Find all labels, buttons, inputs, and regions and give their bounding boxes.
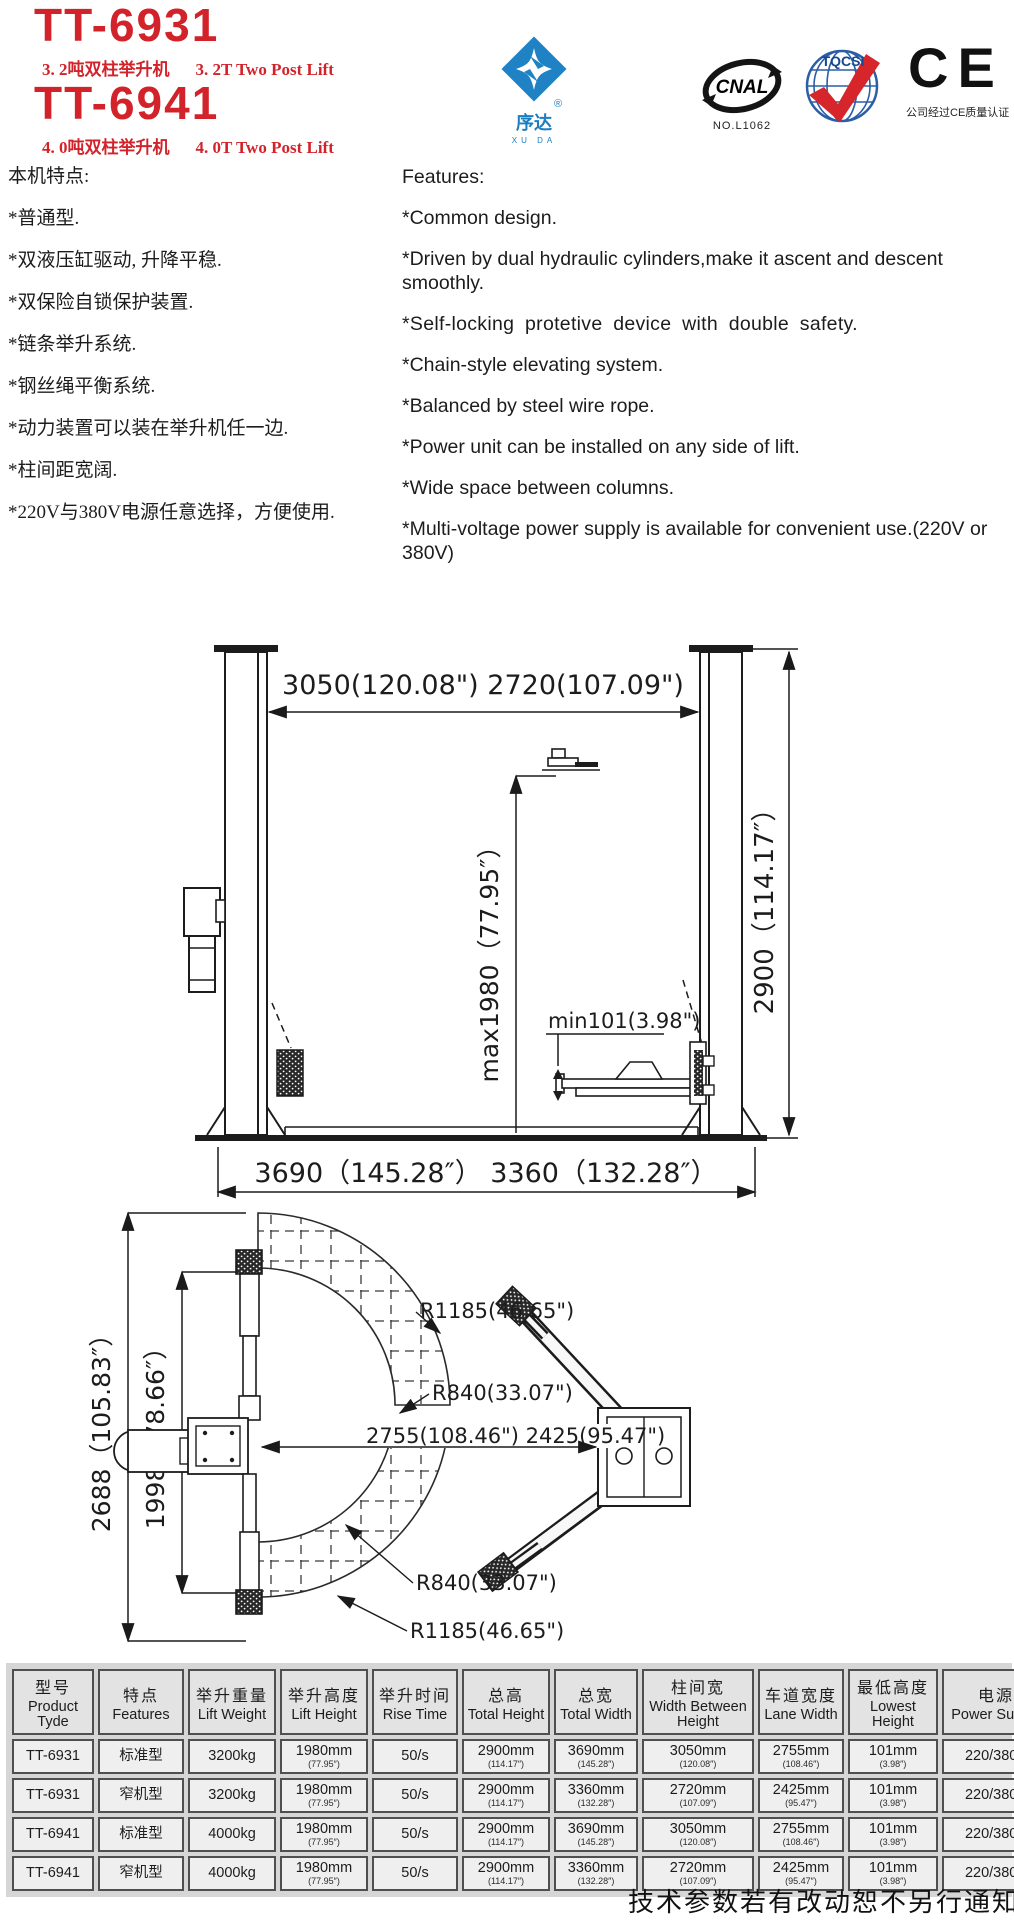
feature-en-item: *Chain-style elevating system. <box>402 353 1014 377</box>
label-r1185-upper: R1185(46.65") <box>420 1299 574 1323</box>
left-column <box>225 652 267 1135</box>
feature-en-item: *Driven by dual hydraulic cylinders,make… <box>402 247 1014 295</box>
col-width-between: 柱间宽Width Between Height <box>642 1669 754 1735</box>
feature-en-item: *Wide space between columns. <box>402 476 1014 500</box>
label-r840-upper: R840(33.07") <box>432 1381 573 1405</box>
left-column-cap <box>214 645 278 652</box>
tqcsi-globe-icon: TQCSI <box>798 44 888 128</box>
feature-en-item: *Self-locking protetive device with doub… <box>402 312 1014 336</box>
col-rise-time: 举升时间Rise Time <box>372 1669 458 1735</box>
feature-cn-item: *220V与380V电源任意选择，方便使用. <box>8 501 348 525</box>
power-unit <box>184 888 225 992</box>
cnal-number: NO.L1062 <box>698 120 786 132</box>
dim-max-lift-height: max1980（77.95″） <box>475 834 504 1083</box>
left-cable-dashed <box>272 1003 291 1048</box>
xuda-logo-subtext: XU DA <box>492 136 576 145</box>
col-features: 特点Features <box>98 1669 184 1735</box>
label-r840-lower: R840(33.07") <box>416 1571 557 1595</box>
table-row: TT-6931 窄机型 3200kg 1980mm(77.95″) 50/s 2… <box>12 1778 1014 1813</box>
datasheet-page: TT-6931 3. 2吨双柱举升机3. 2T Two Post Lift TT… <box>0 0 1014 1920</box>
feature-cn-item: *双保险自锁保护装置. <box>8 291 348 315</box>
col-lift-weight: 举升重量Lift Weight <box>188 1669 276 1735</box>
ce-caption: 公司经过CE质量认证 <box>906 104 1009 120</box>
model-subtitle-tt6941: 4. 0吨双柱举升机4. 0T Two Post Lift <box>42 133 334 158</box>
col-power-supply: 电源Power Supply <box>942 1669 1014 1735</box>
dim-length-outer: 2688（105.83″） <box>87 1322 116 1532</box>
cnal-certification-logo: CNAL NO.L1062 <box>698 58 786 132</box>
dim-width-between-columns: 3050(120.08") 2720(107.09") <box>282 670 684 701</box>
col-lowest-height: 最低高度Lowest Height <box>848 1669 938 1735</box>
feature-en-item: *Balanced by steel wire rope. <box>402 394 1014 418</box>
model-title-tt6931: TT-6931 <box>34 2 219 48</box>
technical-drawings: 3050(120.08") 2720(107.09") max1980（77.9… <box>0 630 1014 1660</box>
xuda-logo-text: 序达 <box>492 109 576 135</box>
feature-en-item: *Power unit can be installed on any side… <box>402 435 1014 459</box>
spec-header-row: 型号Product Tyde 特点Features 举升重量Lift Weigh… <box>12 1669 1014 1735</box>
table-row: TT-6931 标准型 3200kg 1980mm(77.95″) 50/s 2… <box>12 1739 1014 1774</box>
feature-cn-item: *普通型. <box>8 207 348 231</box>
tqcsi-text: TQCSI <box>822 53 865 69</box>
xuda-diamond-icon <box>500 36 568 102</box>
cnal-oval-icon: CNAL <box>698 58 786 114</box>
table-row: TT-6941 标准型 4000kg 1980mm(77.95″) 50/s 2… <box>12 1817 1014 1852</box>
dim-width-between-plan: 2755(108.46") 2425(95.47") <box>366 1424 665 1448</box>
features-cn-title: 本机特点: <box>8 165 348 189</box>
feature-cn-item: *柱间距宽阔. <box>8 459 348 483</box>
features-en-title: Features: <box>402 165 1014 189</box>
registered-mark: ® <box>554 98 562 110</box>
col-lane-width: 车道宽度Lane Width <box>758 1669 844 1735</box>
floor-line <box>195 1135 767 1141</box>
col-total-width: 总宽Total Width <box>554 1669 638 1735</box>
front-view-drawing: 3050(120.08") 2720(107.09") max1980（77.9… <box>184 645 798 1197</box>
col-total-height: 总高Total Height <box>462 1669 550 1735</box>
lift-arm-min-height <box>556 1042 714 1104</box>
ce-mark: CE <box>908 40 1004 96</box>
col-model: 型号Product Tyde <box>12 1669 94 1735</box>
feature-cn-item: *双液压缸驱动, 升降平稳. <box>8 249 348 273</box>
model2-sub-en: 4. 0T Two Post Lift <box>196 138 334 157</box>
feature-cn-item: *动力装置可以装在举升机任一边. <box>8 417 348 441</box>
label-r1185-lower: R1185(46.65") <box>410 1619 564 1643</box>
footer-disclaimer: 技术参数若有改动恕不另行通知 <box>628 1882 1014 1919</box>
spec-table: 型号Product Tyde 特点Features 举升重量Lift Weigh… <box>8 1665 1014 1895</box>
model2-sub-cn: 4. 0吨双柱举升机 <box>42 138 170 157</box>
features-list-en: Features: *Common design. *Driven by dua… <box>402 165 1014 582</box>
spec-table-wrap: 型号Product Tyde 特点Features 举升重量Lift Weigh… <box>6 1663 1012 1897</box>
cnal-text: CNAL <box>716 77 769 98</box>
feature-en-item: *Multi-voltage power supply is available… <box>402 517 1014 565</box>
right-column-cap <box>689 645 753 652</box>
left-carriage <box>277 1050 303 1096</box>
dim-min-pad-height: min101(3.98") <box>548 1009 701 1033</box>
dim-total-height: 2900（114.17″） <box>750 796 780 1015</box>
lift-pad-max-icon <box>542 749 600 770</box>
feature-cn-item: *钢丝绳平衡系统. <box>8 375 348 399</box>
features-list-cn: 本机特点: *普通型. *双液压缸驱动, 升降平稳. *双保险自锁保护装置. *… <box>8 165 348 543</box>
feature-cn-item: *链条举升系统. <box>8 333 348 357</box>
model-title-tt6941: TT-6941 <box>34 80 219 126</box>
dim-overall-width: 3690（145.28″） 3360（132.28″） <box>254 1158 717 1189</box>
tqcsi-certification-logo: TQCSI <box>798 44 888 133</box>
xuda-brand-logo: ® 序达 XU DA <box>492 36 576 145</box>
left-column-plan <box>114 1250 262 1614</box>
feature-en-item: *Common design. <box>402 206 1014 230</box>
col-lift-height: 举升高度Lift Height <box>280 1669 368 1735</box>
top-view-drawing: 2688（105.83″） 1998（78.66″） <box>87 1213 690 1643</box>
